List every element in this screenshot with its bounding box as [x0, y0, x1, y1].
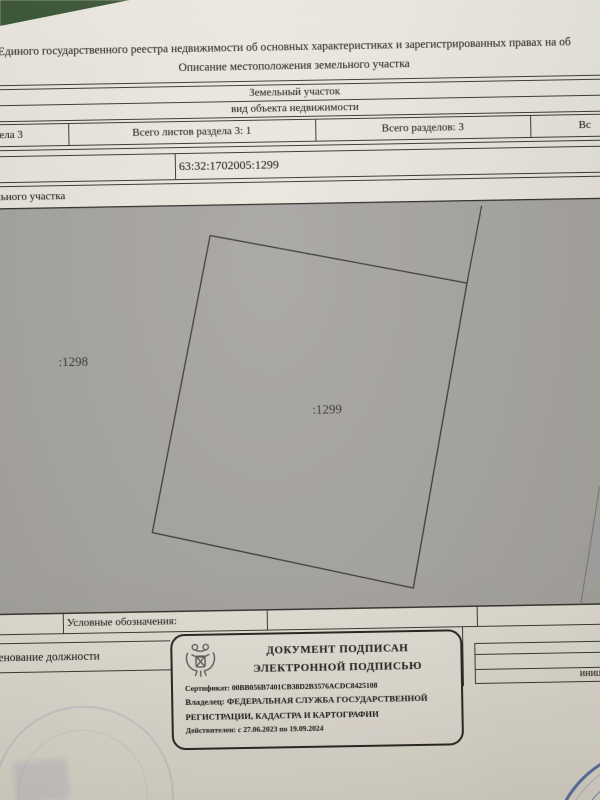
rule: [474, 643, 476, 684]
title-line-2: Описание местоположения земельного участ…: [0, 55, 594, 77]
legend-label: Условные обозначения:: [67, 612, 177, 633]
rule: [0, 145, 600, 158]
coat-of-arms-icon: [182, 639, 219, 680]
sheet-content: Единого государственного реестра недвижи…: [0, 0, 600, 800]
cadastral-number: 63:32:1702005:1299: [179, 151, 279, 179]
title-line-1: Единого государственного реестра недвижи…: [0, 35, 600, 58]
initials-label: иниц: [580, 667, 600, 681]
rule: [477, 607, 478, 626]
parcel-label-1298: :1298: [58, 354, 88, 370]
signature-stamp-box: ДОКУМЕНТ ПОДПИСАН ЭЛЕКТРОННОЙ ПОДПИСЬЮ С…: [170, 629, 464, 750]
stamp-owner-2: РЕГИСТРАЦИИ, КАДАСТРА И КАРТОГРАФИИ: [185, 709, 378, 722]
sheet-info-cell-1: ела 3: [0, 123, 66, 146]
rule: [474, 640, 600, 644]
rule: [267, 611, 268, 630]
map-plan: :1298 :1299: [0, 197, 600, 615]
parcel-label-1299: :1299: [312, 401, 342, 417]
round-stamp-left-mark: [13, 758, 70, 800]
stamp-line-2: ЭЛЕКТРОННОЙ ПОДПИСЬЮ: [225, 659, 451, 675]
document-photo: Единого государственного реестра недвижи…: [0, 0, 600, 800]
position-label: енование должности: [0, 644, 100, 672]
sheet-info-cell-3: Всего разделов: 3: [315, 115, 530, 141]
sheet-info-cell-4: Вс: [530, 113, 600, 137]
rule: [474, 651, 600, 655]
stamp-validity: Действителен: с 27.06.2023 по 19.09.2024: [186, 724, 324, 735]
rule: [63, 614, 64, 633]
map-background: [0, 197, 600, 615]
sheet-info-cell-2: Всего листов раздела 3: 1: [68, 119, 315, 145]
stamp-certificate: Сертификат: 00BB056B7401CB38D2B3576ACDC8…: [185, 681, 378, 693]
round-stamp-right-dotted: [559, 755, 600, 800]
rule: [175, 153, 176, 179]
stamp-line-1: ДОКУМЕНТ ПОДПИСАН: [224, 641, 450, 657]
plan-caption: ельного участка: [0, 185, 66, 208]
stamp-owner-1: Владелец: ФЕДЕРАЛЬНАЯ СЛУЖБА ГОСУДАРСТВЕ…: [185, 693, 428, 707]
